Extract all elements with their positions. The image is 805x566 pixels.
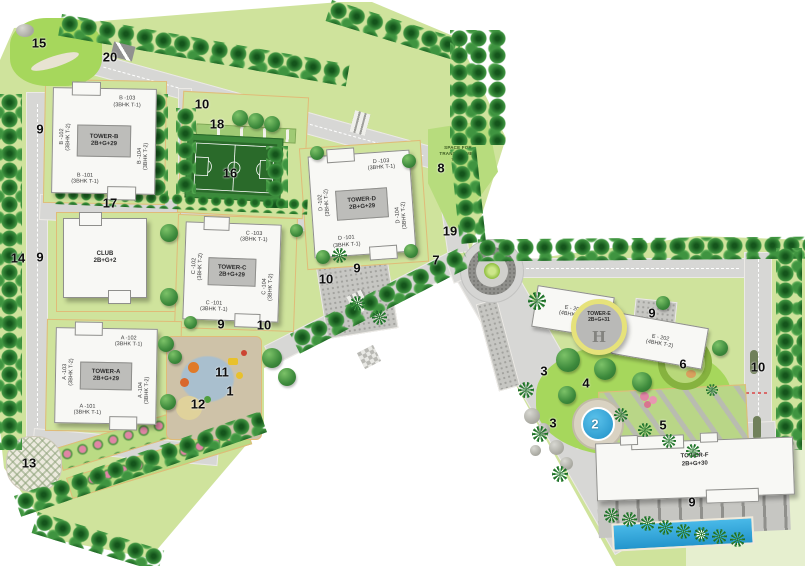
palm-tree-icon	[730, 532, 745, 547]
speed-marking	[746, 392, 770, 394]
palm-tree-icon	[658, 520, 673, 535]
marker-17: 17	[103, 196, 117, 211]
marker-9: 9	[36, 250, 43, 265]
palm-tree-icon	[532, 426, 548, 442]
marker-10: 10	[751, 360, 765, 375]
marker-12: 12	[191, 397, 205, 412]
flower-cluster	[640, 392, 649, 401]
marker-10: 10	[195, 97, 209, 112]
marker-10: 10	[257, 318, 271, 333]
palm-tree-icon	[604, 508, 619, 523]
tower-core: TOWER-B 2B+G+29	[77, 125, 131, 157]
tree-icon	[184, 316, 197, 329]
unit-label: A -101 (3BHK T-1)	[64, 403, 110, 416]
palm-tree-icon	[552, 466, 568, 482]
tree-icon	[160, 224, 178, 242]
marker-5: 5	[659, 418, 666, 433]
rock-icon	[530, 445, 541, 456]
marker-7: 7	[432, 253, 439, 268]
median-planter	[753, 416, 761, 440]
marker-14: 14	[11, 251, 25, 266]
tree-icon	[310, 146, 324, 160]
unit-label: D -104 (3BHK T-2)	[393, 185, 410, 246]
tree-hedge	[0, 94, 22, 450]
palm-tree-icon	[694, 527, 709, 542]
marker-6: 6	[679, 357, 686, 372]
palm-tree-icon	[372, 310, 387, 325]
play-equipment	[228, 358, 238, 365]
site-plan: SPACE FOR TRANSFORMER YARD B -103 (3BHK …	[0, 0, 805, 566]
tower-e-building[interactable]: TOWER-E 2B+G+31 H	[571, 299, 627, 355]
marker-1: 1	[226, 384, 233, 399]
palm-tree-icon	[662, 434, 676, 448]
palm-tree-icon	[614, 408, 628, 422]
rock-icon	[549, 440, 564, 455]
unit-label: C -103 (3BHK T-1)	[232, 230, 276, 244]
stair-core	[620, 435, 638, 446]
tower-b-building[interactable]: B -103 (3BHK T-1) B -102 (3BHK T-2) B -1…	[51, 87, 157, 195]
tower-d-label: TOWER-D 2B+G+29	[347, 196, 376, 212]
marker-9: 9	[688, 495, 695, 510]
marker-9: 9	[648, 306, 655, 321]
play-equipment	[236, 372, 243, 379]
palm-tree-icon	[518, 382, 534, 398]
tower-c-label: TOWER-C 2B+G+29	[217, 264, 246, 279]
tower-c-building[interactable]: C -103 (3BHK T-1) C -102 (3BHK T-2) C -1…	[182, 221, 281, 322]
club-label: CLUB 2B+G+2	[64, 219, 146, 297]
marker-3: 3	[540, 364, 547, 379]
unit-label: B -104 (3BHK T-2)	[136, 125, 150, 188]
unit-label: A -102 (3BHK T-1)	[106, 335, 152, 348]
tree-icon	[632, 372, 652, 392]
paver-square	[357, 345, 381, 369]
palm-tree-icon	[640, 516, 655, 531]
roundabout-center-garden	[484, 263, 500, 279]
tower-a-building[interactable]: A -102 (3BHK T-1) A -103 (3BHK T-2) A -1…	[54, 327, 158, 425]
marker-9: 9	[353, 261, 360, 276]
marker-2: 2	[591, 417, 598, 432]
marker-9: 9	[36, 122, 43, 137]
unit-label: B -102 (3BHK T-2)	[59, 105, 73, 168]
marker-11: 11	[215, 365, 229, 380]
marker-13: 13	[22, 456, 36, 471]
tree-icon	[168, 350, 182, 364]
palm-tree-icon	[350, 296, 365, 311]
tree-icon	[404, 244, 418, 258]
palm-tree-icon	[686, 444, 700, 458]
tree-icon	[594, 358, 616, 380]
tower-e-label: TOWER-E 2B+G+31	[576, 311, 622, 323]
unit-label: A -104 (3BHK T-2)	[138, 362, 152, 419]
unit-label: C -104 (3BHK T-2)	[260, 258, 275, 316]
tower-b-label: TOWER-B 2B+G+29	[90, 134, 119, 149]
tower-core: TOWER-D 2B+G+29	[335, 187, 389, 221]
unit-label: B -103 (3BHK T-1)	[104, 95, 151, 108]
rock-icon	[524, 408, 540, 424]
tower-d-building[interactable]: D -103 (3BHK T-1) D -102 (3BHK T-2) D -1…	[308, 150, 417, 259]
marker-8: 8	[437, 161, 444, 176]
palm-tree-icon	[676, 524, 691, 539]
tree-icon	[712, 340, 728, 356]
marker-9: 9	[217, 317, 224, 332]
tree-icon	[290, 224, 303, 237]
flower-cluster	[644, 401, 651, 408]
tree-hedge	[776, 248, 802, 450]
tree-icon	[264, 116, 280, 132]
tree-icon	[160, 288, 178, 306]
play-equipment	[188, 362, 199, 373]
tree-icon	[160, 394, 176, 410]
tree-icon	[556, 348, 580, 372]
unit-label: D -102 (3BHK T-2)	[316, 172, 333, 233]
tree-icon	[278, 368, 296, 386]
tree-icon	[232, 110, 248, 126]
unit-label: D -101 (3BHK T-1)	[323, 234, 370, 250]
palm-tree-icon	[712, 529, 727, 544]
club-building[interactable]: CLUB 2B+G+2	[63, 218, 147, 298]
tree-icon	[316, 250, 330, 264]
tree-icon	[402, 154, 416, 168]
unit-label: E - 202 (4BHK T-2)	[645, 332, 674, 349]
play-equipment	[180, 378, 189, 387]
unit-label: D -103 (3BHK T-1)	[358, 157, 405, 173]
palm-tree-icon	[332, 248, 347, 263]
palm-tree-icon	[706, 384, 718, 396]
unit-label: A -103 (3BHK T-2)	[62, 343, 76, 400]
tree-icon	[248, 113, 264, 129]
tree-hedge	[478, 237, 805, 262]
garden-accent	[686, 370, 696, 378]
palm-tree-icon	[528, 292, 546, 310]
tree-icon	[262, 348, 282, 368]
tree-icon	[558, 386, 576, 404]
tree-hedge	[176, 108, 196, 194]
tower-core: TOWER-A 2B+G+29	[80, 361, 132, 390]
unit-label: B -101 (3BHK T-1)	[61, 172, 108, 185]
tower-a-label: TOWER-A 2B+G+29	[92, 369, 121, 384]
helipad-icon: H	[576, 328, 622, 346]
marker-15: 15	[32, 36, 46, 51]
unit-label: C -102 (3BHK T-2)	[190, 238, 205, 296]
stair-core	[700, 432, 718, 443]
marker-4: 4	[582, 376, 589, 391]
tower-core: TOWER-C 2B+G+29	[207, 257, 257, 287]
marker-19: 19	[443, 224, 457, 239]
marker-16: 16	[223, 166, 237, 181]
marker-20: 20	[103, 50, 117, 65]
palm-tree-icon	[638, 423, 652, 437]
marker-10: 10	[319, 272, 333, 287]
unit-label: C -101 (3BHK T-1)	[192, 299, 236, 313]
marker-18: 18	[210, 117, 224, 132]
marker-3: 3	[549, 416, 556, 431]
tree-icon	[656, 296, 670, 310]
tree-hedge	[450, 30, 508, 145]
palm-tree-icon	[622, 512, 637, 527]
play-equipment	[241, 350, 247, 356]
road-right-parcel-top[interactable]	[505, 258, 750, 278]
